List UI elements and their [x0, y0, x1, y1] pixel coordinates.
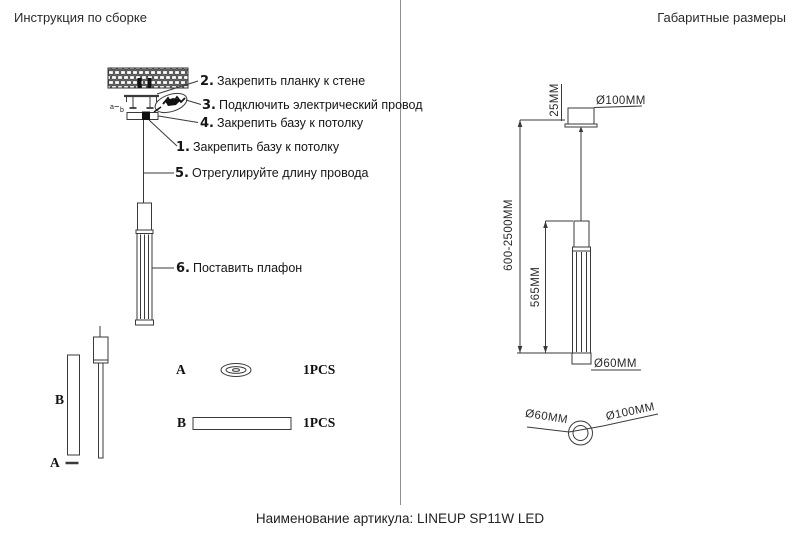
- article-name: Наименование артикула: LINEUP SP11W LED: [0, 511, 800, 526]
- bottom-view-inner-label: Ø60MM: [524, 408, 568, 427]
- pendant-lamp-dimension-view: [572, 221, 591, 364]
- ceiling-base: [127, 112, 158, 121]
- step-1-label: 1.Закрепить базу к потолку: [176, 140, 339, 155]
- parts-row-a-key: A: [176, 362, 186, 378]
- step-3-text: Подключить электрический провод: [219, 98, 423, 112]
- part-b-tube-exploded: [68, 355, 80, 455]
- part-b-bar: [193, 418, 291, 430]
- shade-diameter-label: Ø60MM: [594, 358, 637, 370]
- parts-row-b-qty: 1PCS: [303, 415, 335, 431]
- parts-row-a-qty: 1PCS: [303, 362, 335, 378]
- dimension-suspension-range: [517, 120, 577, 353]
- section-title-assembly: Инструкция по сборке: [14, 10, 147, 25]
- section-title-dimensions: Габаритные размеры: [657, 10, 786, 25]
- step-4-label: 4.Закрепить базу к потолку: [200, 116, 363, 131]
- wall-hatch: [108, 68, 188, 88]
- step-1-number: 1.: [176, 140, 190, 155]
- part-a-ring: [221, 364, 251, 377]
- exploded-lamp: [66, 326, 109, 463]
- step-6-number: 6.: [176, 261, 190, 276]
- suspension-range-label: 600-2500MM: [503, 199, 515, 271]
- dimension-shade-height: [543, 221, 573, 353]
- step-6-label: 6.Поставить плафон: [176, 261, 302, 276]
- mounting-bracket: [124, 96, 159, 108]
- step-1-text: Закрепить базу к потолку: [193, 140, 339, 154]
- parts-row-b-key: B: [177, 415, 186, 431]
- exploded-label-a: A: [50, 455, 60, 471]
- step-2-number: 2.: [200, 74, 214, 89]
- step-6-text: Поставить плафон: [193, 261, 302, 275]
- step-5-text: Отрегулируйте длину провода: [192, 166, 369, 180]
- canopy-diameter-label: Ø100MM: [596, 95, 646, 107]
- pendant-lamp-side: [136, 203, 154, 325]
- mark-a-label: a: [110, 104, 114, 111]
- canopy-height-label: 25MM: [549, 83, 561, 117]
- step-4-text: Закрепить базу к потолку: [217, 116, 363, 130]
- step-3-label: 3.Подключить электрический провод: [202, 98, 423, 113]
- instruction-sheet: { "page": { "header_left": "Инструкция п…: [0, 0, 800, 551]
- step-5-number: 5.: [175, 166, 189, 181]
- mount-ab-marks: a b: [110, 104, 124, 114]
- exploded-label-b: B: [55, 392, 64, 408]
- canopy-drawing: [565, 108, 597, 221]
- step-2-label: 2.Закрепить планку к стене: [200, 74, 365, 89]
- anchor-bolt-right: [148, 78, 152, 88]
- section-divider: [400, 0, 401, 505]
- anchor-bolt-left: [138, 78, 142, 88]
- step-4-number: 4.: [200, 116, 214, 131]
- shade-height-label: 565MM: [530, 267, 542, 307]
- step-3-number: 3.: [202, 98, 216, 113]
- step-5-label: 5.Отрегулируйте длину провода: [175, 166, 369, 181]
- mark-b-label: b: [120, 107, 124, 114]
- step-2-text: Закрепить планку к стене: [217, 74, 365, 88]
